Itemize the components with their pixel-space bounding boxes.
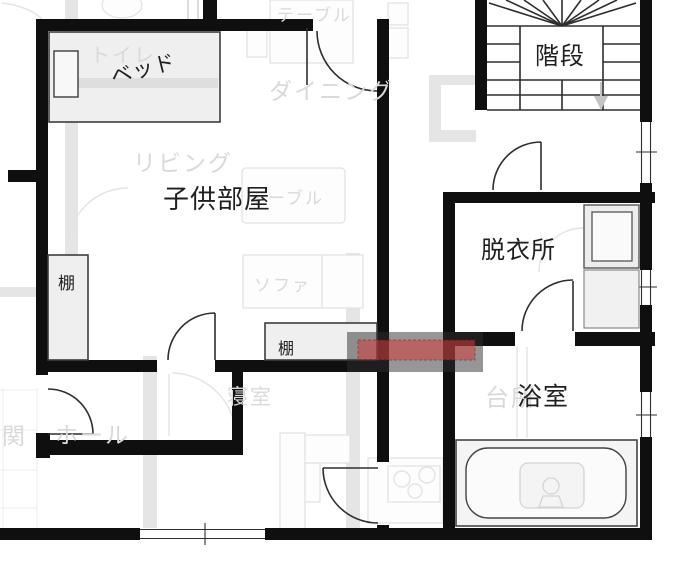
annotation-layer	[347, 332, 483, 372]
room-label-entrance: 関	[2, 424, 27, 450]
floor-plan: トイレ リビング ダイニング テーブル テーブル ソファ 寝室 台所 ホール 関…	[0, 0, 677, 569]
window-right-upper	[636, 122, 657, 183]
wall	[443, 192, 655, 203]
faded-door-arc	[2, 3, 42, 19]
chair-outline	[388, 28, 408, 58]
stair-direction-arrow-icon	[594, 96, 608, 110]
wall	[203, 0, 217, 19]
kitchen-counter-outline	[305, 463, 320, 502]
wall	[36, 360, 157, 372]
room-label-bathroom: 浴室	[517, 382, 569, 411]
exterior-wall	[640, 437, 652, 540]
bathtub-panel	[520, 463, 584, 508]
exterior-wall	[640, 0, 652, 122]
room-label-bedroom: 寝室	[227, 385, 273, 409]
door-children-room-bottom	[168, 313, 215, 360]
room-label-dressing-room: 脱衣所	[481, 236, 556, 264]
furniture-label-shelf-bottom: 棚	[278, 339, 295, 358]
room-label-living: リビング	[133, 151, 233, 177]
room-label-dining: ダイニング	[269, 79, 394, 105]
furniture-label-shelf-left: 棚	[58, 274, 76, 294]
wall	[36, 19, 48, 375]
wall	[36, 19, 313, 31]
kitchen-sink-outline	[305, 435, 350, 463]
exterior-wall	[640, 183, 652, 270]
faded-wall	[429, 130, 476, 142]
exterior-wall	[0, 528, 140, 540]
chair-outline	[388, 3, 408, 25]
faded-door-arc	[169, 373, 236, 437]
door-bathroom	[522, 280, 573, 331]
room-label-stairs: 階段	[535, 42, 585, 70]
window-right-bath	[636, 392, 657, 437]
bed-pillow	[54, 51, 78, 97]
exterior-wall	[640, 305, 652, 392]
kitchen-cabinet-outline	[280, 433, 305, 530]
wall	[36, 433, 50, 458]
door-stairs-bottom	[493, 142, 541, 190]
stair-wall	[475, 0, 487, 110]
entrance-tile-grid	[0, 388, 38, 528]
wall	[8, 170, 48, 182]
wall	[232, 372, 243, 448]
floor-plan-canvas: トイレ リビング ダイニング テーブル テーブル ソファ 寝室 台所 ホール 関…	[0, 0, 677, 569]
window-bottom	[140, 523, 265, 545]
faded-toilet-wall-lines	[188, 0, 198, 19]
room-label-children-room: 子供部屋	[163, 185, 271, 215]
furniture-label-sofa: ソファ	[254, 276, 311, 296]
highlighted-wall-segment[interactable]	[358, 340, 475, 360]
room-label-hall: ホール	[55, 423, 130, 449]
faded-wall	[0, 287, 36, 297]
toilet-bowl-outline	[102, 0, 142, 18]
faded-wall	[429, 75, 476, 85]
washing-machine-space	[584, 270, 639, 328]
furniture-label-table-top: テーブル	[277, 5, 352, 26]
washbasin-sink	[592, 212, 632, 261]
shelf-left	[48, 255, 88, 360]
exterior-wall	[265, 528, 652, 540]
